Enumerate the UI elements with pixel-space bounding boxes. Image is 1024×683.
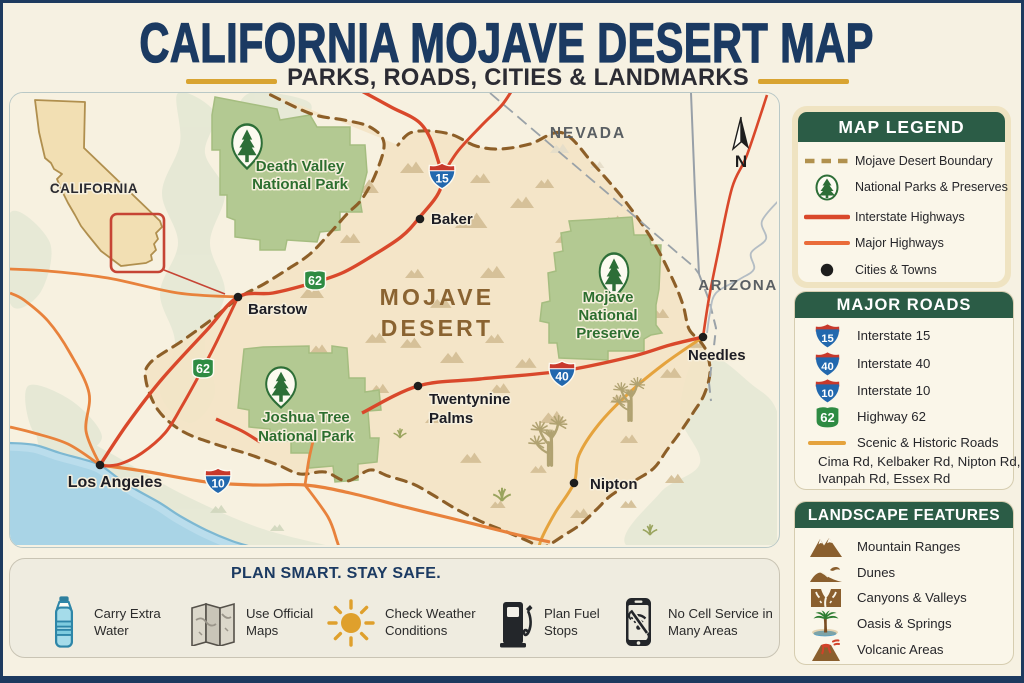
svg-text:National Park: National Park xyxy=(252,176,349,193)
svg-text:NEVADA: NEVADA xyxy=(549,125,625,142)
svg-text:40: 40 xyxy=(821,361,834,373)
svg-text:Preserve: Preserve xyxy=(576,325,639,342)
svg-text:Los Angeles: Los Angeles xyxy=(67,474,162,491)
svg-text:Needles: Needles xyxy=(688,347,746,364)
svg-text:MOJAVE: MOJAVE xyxy=(379,284,494,310)
svg-text:National: National xyxy=(578,307,637,324)
svg-text:Baker: Baker xyxy=(431,211,473,228)
svg-text:Nipton: Nipton xyxy=(590,476,637,493)
svg-text:National Park: National Park xyxy=(258,428,355,445)
svg-text:62: 62 xyxy=(308,274,322,288)
svg-text:ARIZONA: ARIZONA xyxy=(698,277,777,294)
svg-text:Joshua Tree: Joshua Tree xyxy=(262,409,350,426)
svg-text:Barstow: Barstow xyxy=(248,301,308,318)
svg-text:Mojave: Mojave xyxy=(582,289,633,306)
svg-text:Palms: Palms xyxy=(429,410,473,427)
svg-text:10: 10 xyxy=(821,388,834,400)
svg-text:40: 40 xyxy=(555,369,569,383)
svg-text:N: N xyxy=(734,152,746,171)
svg-text:CALIFORNIA: CALIFORNIA xyxy=(49,181,137,196)
svg-text:10: 10 xyxy=(211,476,225,490)
svg-text:Twentynine: Twentynine xyxy=(429,391,510,408)
svg-text:15: 15 xyxy=(435,171,449,185)
svg-text:62: 62 xyxy=(820,410,834,425)
svg-text:62: 62 xyxy=(196,362,210,376)
svg-text:15: 15 xyxy=(821,333,834,345)
svg-text:DESERT: DESERT xyxy=(380,315,493,341)
svg-text:Death Valley: Death Valley xyxy=(255,158,344,175)
